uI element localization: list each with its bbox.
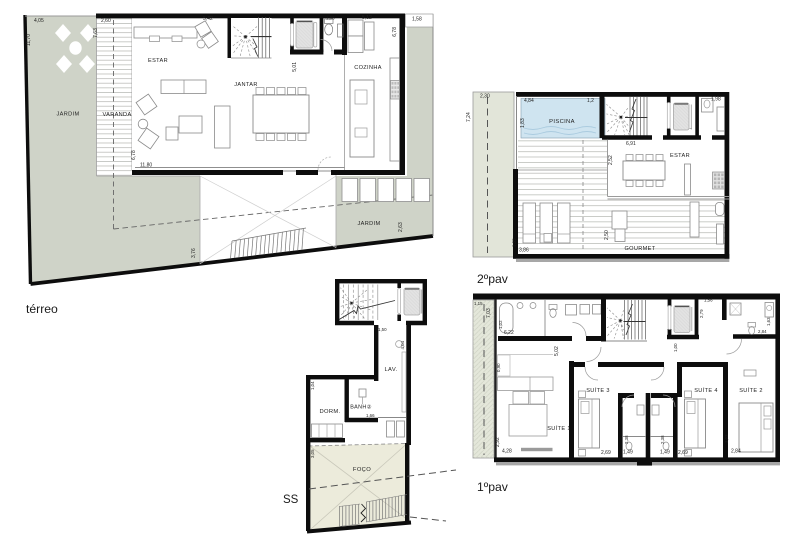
svg-text:2,69: 2,69	[678, 450, 688, 456]
svg-text:0,90: 0,90	[496, 363, 501, 372]
svg-text:2,38: 2,38	[624, 435, 629, 444]
svg-text:2,79: 2,79	[699, 309, 704, 318]
svg-text:3,05: 3,05	[310, 449, 315, 458]
svg-text:ESTAR: ESTAR	[670, 153, 690, 159]
svg-text:LAV.: LAV.	[384, 367, 397, 373]
svg-text:11,70: 11,70	[26, 34, 32, 46]
svg-text:JANTAR: JANTAR	[234, 82, 257, 88]
svg-text:1,04: 1,04	[310, 381, 315, 390]
svg-text:ESTAR: ESTAR	[148, 58, 168, 64]
svg-text:BANH②: BANH②	[350, 405, 372, 411]
svg-text:3,55: 3,55	[512, 238, 517, 247]
svg-text:GOURMET: GOURMET	[624, 246, 655, 252]
svg-text:1,58: 1,58	[412, 17, 422, 23]
svg-text:6,22: 6,22	[504, 330, 514, 336]
svg-text:7,03: 7,03	[486, 308, 492, 318]
svg-text:1,15: 1,15	[474, 301, 483, 306]
svg-text:1,63: 1,63	[766, 317, 771, 326]
svg-text:1,00: 1,00	[673, 343, 678, 352]
svg-text:2,52: 2,52	[608, 155, 614, 165]
svg-text:JARDIM: JARDIM	[57, 112, 80, 118]
svg-text:SUÍTE 2: SUÍTE 2	[739, 387, 763, 394]
svg-text:térreo: térreo	[26, 302, 58, 316]
svg-text:SS: SS	[283, 494, 299, 506]
svg-text:COZINHA: COZINHA	[354, 65, 382, 71]
svg-text:2,84: 2,84	[758, 329, 767, 334]
svg-text:3,76: 3,76	[191, 248, 197, 258]
svg-text:1,49: 1,49	[660, 450, 670, 456]
svg-text:5,12: 5,12	[362, 15, 372, 21]
svg-text:1,98: 1,98	[711, 97, 721, 103]
svg-text:SUÍTE 1: SUÍTE 1	[547, 425, 571, 432]
svg-text:5,01: 5,01	[292, 62, 298, 72]
svg-text:4,84: 4,84	[524, 98, 534, 104]
svg-text:2ºpav: 2ºpav	[477, 272, 509, 286]
svg-text:1ºpav: 1ºpav	[477, 480, 509, 494]
svg-text:4,05: 4,05	[34, 18, 44, 24]
svg-text:3,02: 3,02	[724, 434, 729, 443]
svg-text:4,28: 4,28	[502, 449, 512, 455]
svg-text:4,04: 4,04	[400, 340, 405, 349]
svg-text:2,63: 2,63	[398, 222, 404, 232]
svg-text:SUÍTE 3: SUÍTE 3	[586, 387, 610, 394]
svg-text:2,30: 2,30	[480, 94, 490, 100]
svg-text:2,38: 2,38	[660, 435, 665, 444]
svg-text:1,08: 1,08	[326, 16, 335, 21]
svg-text:1,2: 1,2	[587, 98, 594, 104]
svg-text:2,60: 2,60	[101, 18, 111, 24]
svg-text:1,49: 1,49	[623, 450, 633, 456]
svg-text:DORM.: DORM.	[319, 409, 340, 415]
svg-text:FOÇO: FOÇO	[353, 467, 371, 473]
svg-text:5,42: 5,42	[203, 16, 213, 22]
svg-text:VARANDA: VARANDA	[102, 112, 131, 118]
svg-text:PISCINA: PISCINA	[549, 119, 575, 125]
svg-text:1,56: 1,56	[704, 298, 713, 303]
svg-text:1,66: 1,66	[366, 413, 375, 418]
svg-text:JARDIM: JARDIM	[358, 221, 381, 227]
svg-text:1,02: 1,02	[498, 320, 503, 329]
svg-text:2,50: 2,50	[604, 230, 610, 240]
svg-text:5,02: 5,02	[554, 346, 560, 356]
svg-text:1,83: 1,83	[520, 118, 526, 128]
svg-text:3,86: 3,86	[519, 248, 529, 254]
svg-text:2,69: 2,69	[601, 450, 611, 456]
svg-text:2,92: 2,92	[495, 437, 501, 447]
svg-text:7,63: 7,63	[93, 28, 99, 38]
svg-text:SUÍTE 4: SUÍTE 4	[694, 387, 718, 394]
svg-text:6,78: 6,78	[392, 27, 398, 37]
svg-text:6,78: 6,78	[131, 150, 137, 160]
svg-text:7,24: 7,24	[466, 112, 472, 122]
svg-text:2,84: 2,84	[731, 449, 741, 455]
svg-text:11,80: 11,80	[140, 163, 152, 169]
svg-text:1,50: 1,50	[378, 327, 387, 332]
svg-text:6,91: 6,91	[626, 141, 636, 147]
